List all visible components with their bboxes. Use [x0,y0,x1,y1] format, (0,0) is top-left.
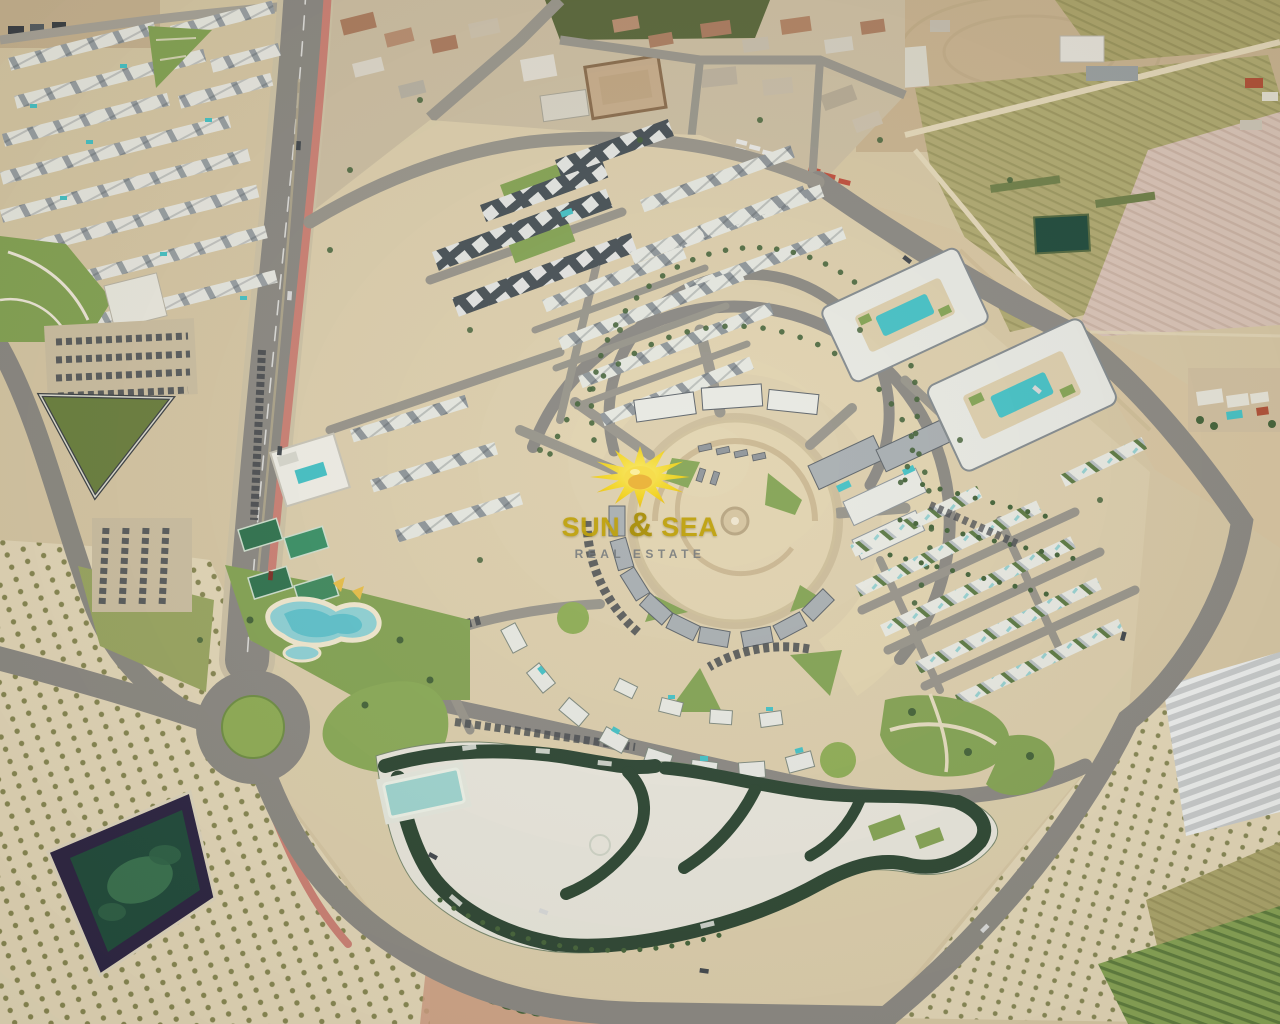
farm-reservoir [1034,215,1090,254]
existing-houses-east [1188,368,1280,432]
central-plaza [635,421,835,622]
aerial-render-image: SUN & SEA REAL ESTATE [0,0,1280,1024]
aerial-scene [0,0,1280,1024]
walled-yard [585,56,666,119]
roundabout [209,683,297,771]
farm-warehouse [1060,36,1104,62]
